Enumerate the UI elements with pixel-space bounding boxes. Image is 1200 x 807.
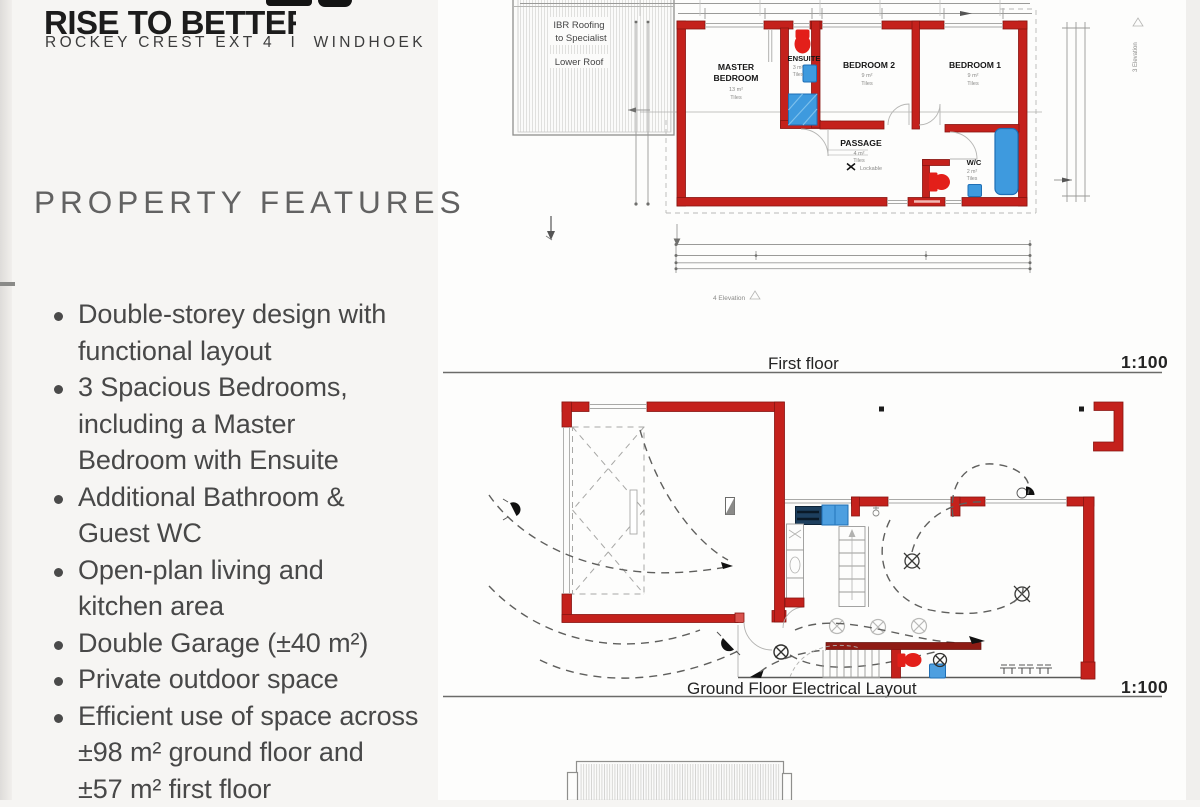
svg-text:9 m²: 9 m² (862, 73, 873, 79)
svg-text:IBR Roofing: IBR Roofing (553, 20, 604, 31)
svg-text:Lockable: Lockable (860, 166, 882, 172)
svg-text:1:100: 1:100 (1121, 677, 1168, 697)
svg-text:Tiles: Tiles (793, 72, 804, 78)
svg-text:4 Elevation: 4 Elevation (713, 295, 746, 302)
svg-text:Tiles: Tiles (861, 81, 873, 87)
svg-text:Tiles: Tiles (730, 95, 742, 101)
svg-text:W/C: W/C (967, 158, 982, 167)
svg-text:13 m²: 13 m² (729, 87, 743, 93)
svg-text:Tiles: Tiles (853, 158, 865, 164)
svg-text:BEDROOM 1: BEDROOM 1 (949, 60, 1001, 70)
svg-text:Tiles: Tiles (967, 81, 979, 87)
svg-text:2 m²: 2 m² (967, 169, 978, 175)
svg-text:Tiles: Tiles (967, 176, 978, 182)
svg-text:BEDROOM: BEDROOM (714, 73, 759, 83)
svg-text:BEDROOM 2: BEDROOM 2 (843, 60, 895, 70)
svg-text:to Specialist: to Specialist (555, 33, 607, 44)
svg-text:First floor: First floor (768, 354, 839, 373)
svg-text:MASTER: MASTER (718, 62, 755, 72)
svg-text:3 Elevation: 3 Elevation (1133, 42, 1139, 72)
svg-text:ENSUITE: ENSUITE (788, 54, 821, 63)
svg-text:4 m²: 4 m² (854, 151, 865, 157)
svg-text:Lower Roof: Lower Roof (555, 57, 604, 68)
svg-text:PASSAGE: PASSAGE (840, 138, 882, 148)
svg-text:3 m²: 3 m² (793, 65, 804, 71)
svg-text:Ground Floor Electrical Layout: Ground Floor Electrical Layout (687, 679, 917, 698)
svg-text:9 m²: 9 m² (968, 73, 979, 79)
svg-text:1:100: 1:100 (1121, 352, 1168, 372)
